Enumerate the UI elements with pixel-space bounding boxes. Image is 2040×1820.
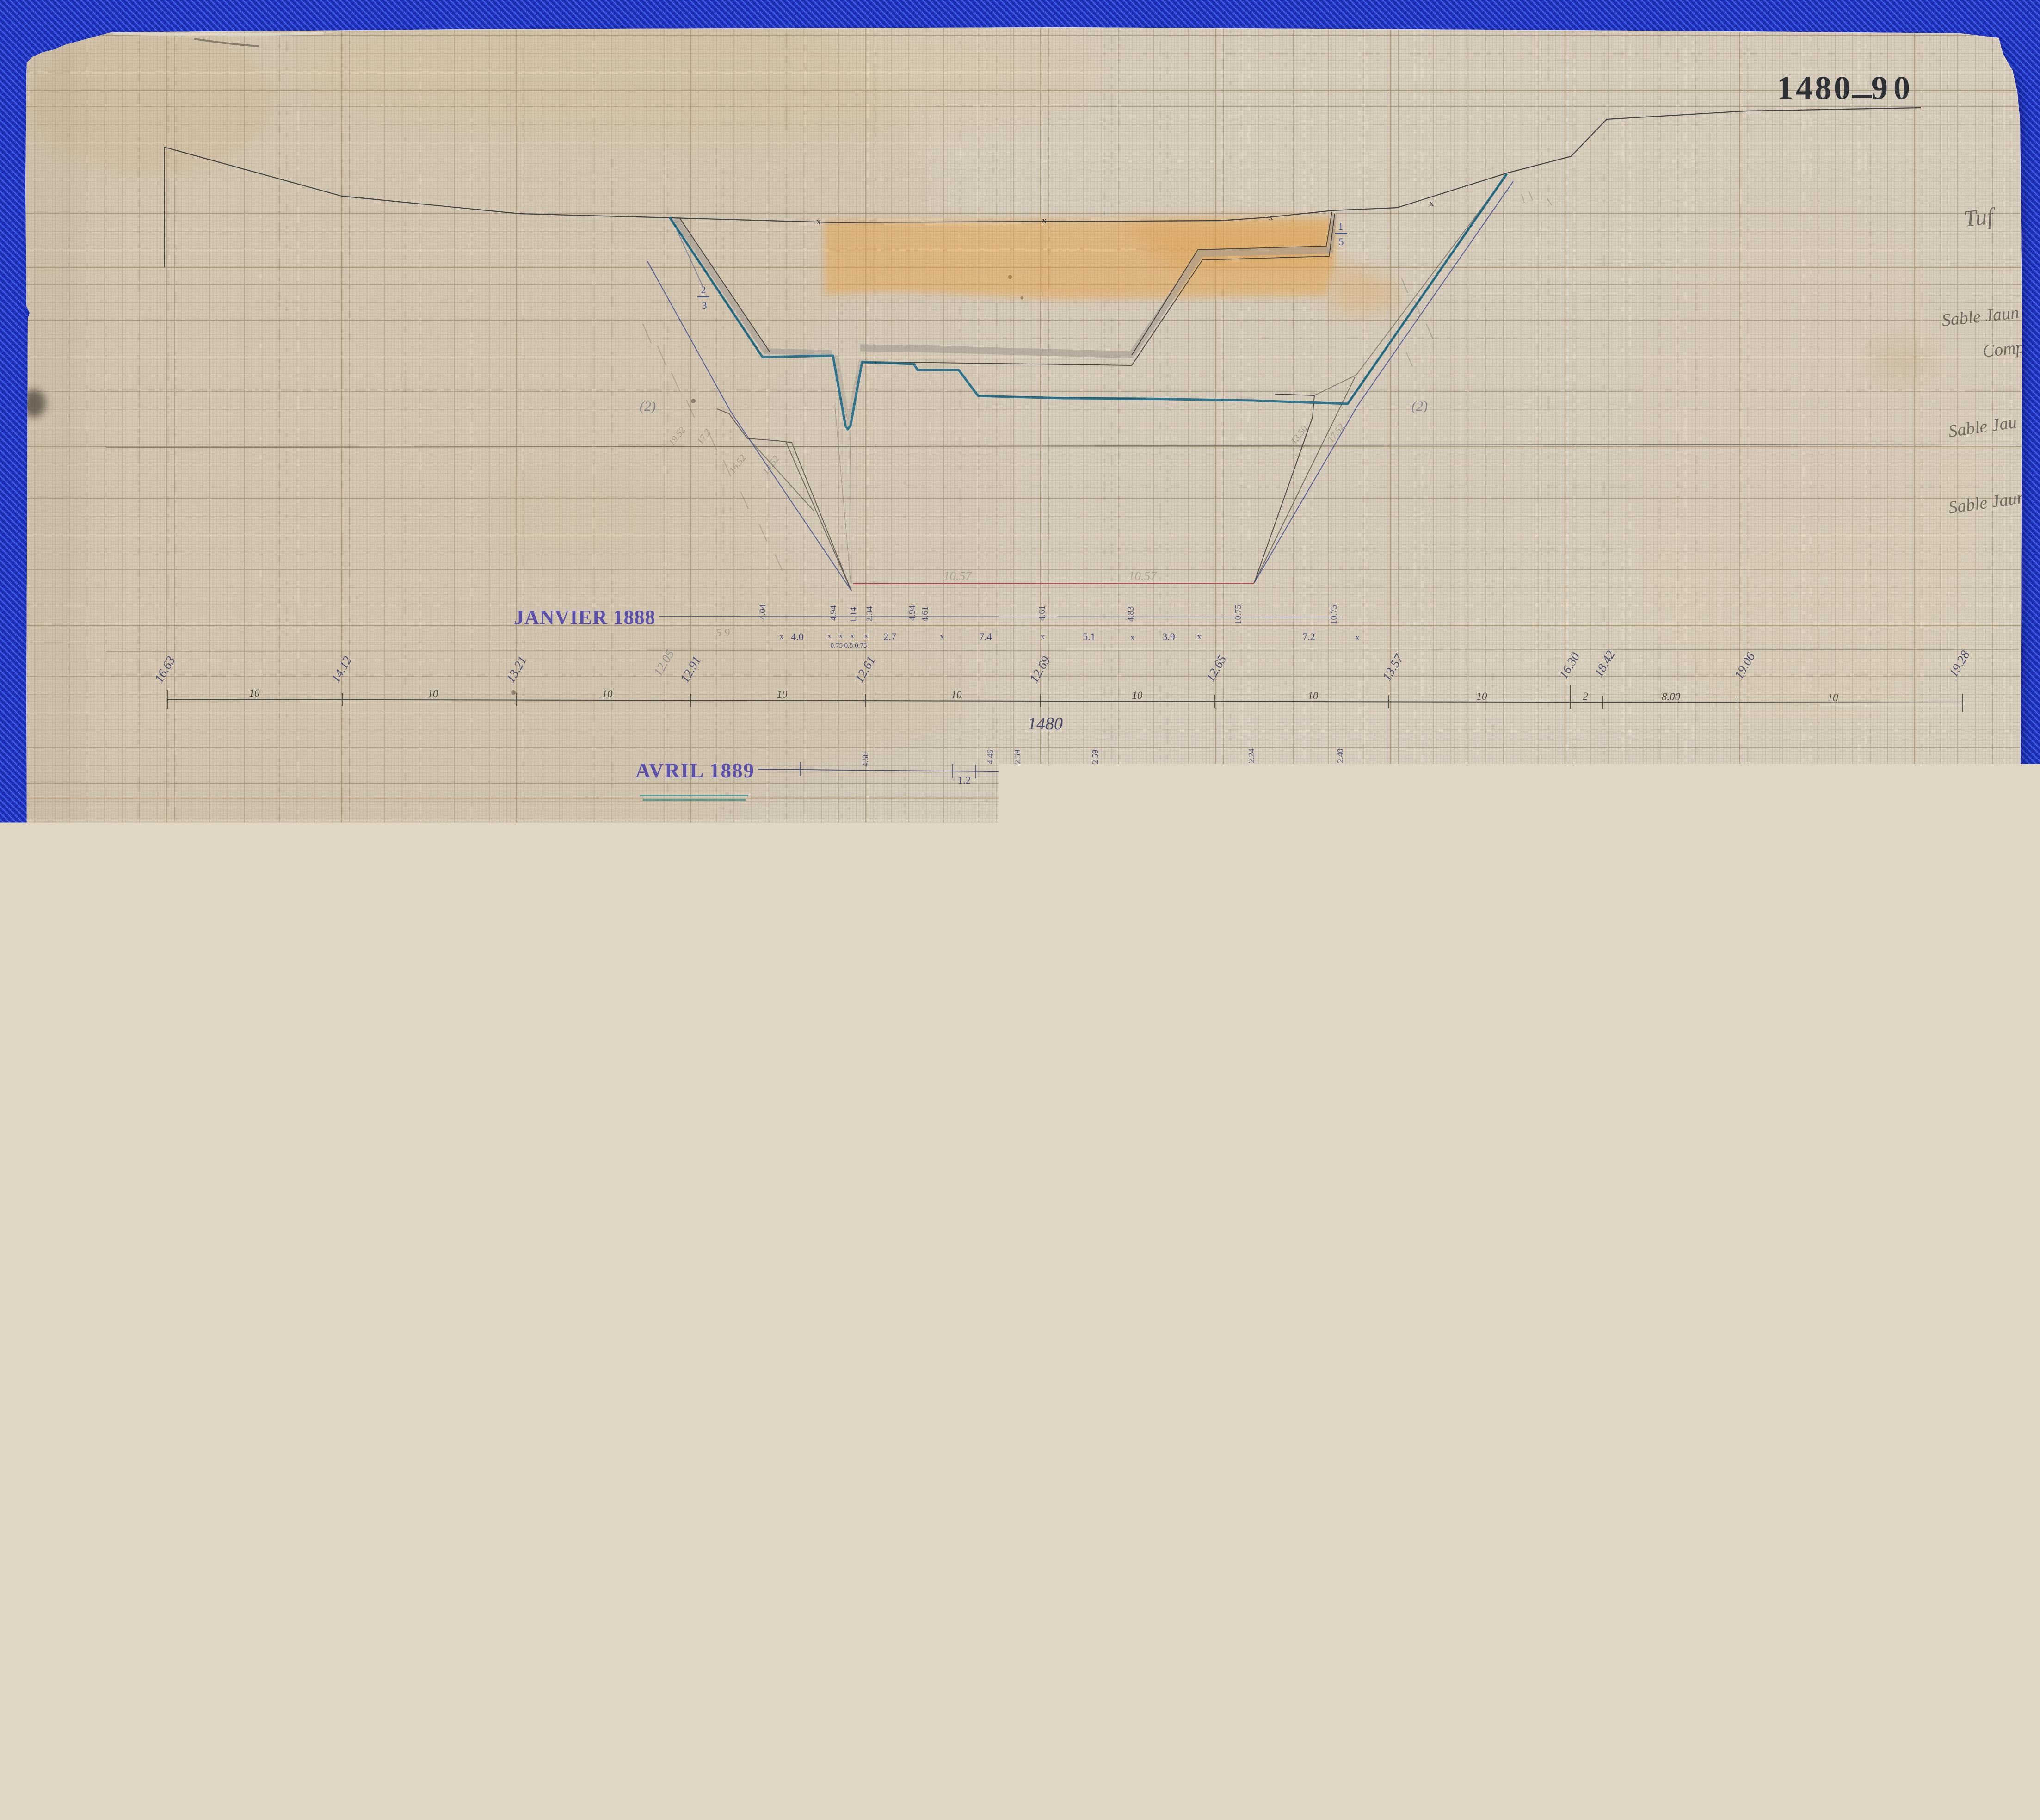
svg-text:1: 1 bbox=[1340, 1087, 1345, 1098]
svg-text:10: 10 bbox=[1828, 692, 1839, 703]
svg-text:10: 10 bbox=[1308, 690, 1319, 702]
svg-text:10: 10 bbox=[777, 689, 788, 700]
svg-text:5.1: 5.1 bbox=[1083, 631, 1096, 642]
svg-text:2.34: 2.34 bbox=[865, 606, 875, 622]
svg-text:10.75: 10.75 bbox=[1329, 605, 1339, 624]
svg-text:(2): (2) bbox=[1411, 399, 1428, 414]
svg-text:1.2: 1.2 bbox=[958, 1650, 971, 1661]
svg-text:10.75: 10.75 bbox=[1233, 605, 1243, 624]
svg-text:7.2: 7.2 bbox=[1302, 631, 1315, 642]
svg-text:1480: 1480 bbox=[1777, 69, 1853, 106]
svg-text:2.25: 2.25 bbox=[1140, 1622, 1149, 1637]
svg-text:12.00: 12.00 bbox=[1140, 773, 1163, 785]
svg-text:2: 2 bbox=[1583, 691, 1588, 702]
svg-text:x: x bbox=[1204, 1500, 1208, 1509]
svg-text:6.80: 6.80 bbox=[1277, 1496, 1295, 1507]
svg-text:9.00: 9.00 bbox=[1228, 1651, 1246, 1662]
svg-text:Tuf: Tuf bbox=[1969, 1056, 2004, 1085]
svg-text:JANVIER 1888: JANVIER 1888 bbox=[525, 1480, 667, 1503]
svg-text:x: x bbox=[1429, 198, 1434, 208]
svg-text:10.80: 10.80 bbox=[1354, 1466, 1363, 1486]
svg-text:7.4: 7.4 bbox=[979, 631, 992, 642]
svg-text:4.40: 4.40 bbox=[856, 1625, 865, 1640]
svg-text:x: x bbox=[780, 632, 784, 641]
svg-text:5: 5 bbox=[1339, 236, 1344, 247]
svg-text:(2): (2) bbox=[640, 399, 656, 414]
svg-text:10: 10 bbox=[249, 687, 260, 699]
svg-text:AVRIL 1889: AVRIL 1889 bbox=[635, 759, 755, 782]
svg-text:2.24: 2.24 bbox=[1247, 749, 1256, 764]
svg-text:10: 10 bbox=[951, 689, 962, 701]
svg-text:2: 2 bbox=[1581, 1561, 1586, 1573]
svg-text:5 9: 5 9 bbox=[716, 627, 730, 639]
svg-text:0.75 0.5 0.75: 0.75 0.5 0.75 bbox=[831, 642, 867, 649]
svg-text:AVRIL 1889: AVRIL 1889 bbox=[642, 1631, 761, 1654]
svg-text:1.2: 1.2 bbox=[958, 774, 971, 786]
svg-text:4.67: 4.67 bbox=[825, 1466, 835, 1481]
svg-text:10: 10 bbox=[776, 1562, 787, 1574]
svg-text:10.57: 10.57 bbox=[943, 569, 972, 583]
svg-text:6.00: 6.00 bbox=[1097, 1651, 1116, 1662]
svg-text:1.07: 1.07 bbox=[844, 1468, 854, 1483]
svg-text:4.98: 4.98 bbox=[1367, 1614, 1376, 1629]
svg-text:1: 1 bbox=[1338, 221, 1344, 232]
svg-text:2.51: 2.51 bbox=[1035, 1624, 1045, 1639]
svg-text:x: x bbox=[864, 631, 869, 640]
svg-text:x: x bbox=[1041, 1500, 1045, 1509]
svg-text:4.61: 4.61 bbox=[920, 606, 930, 622]
svg-text:x: x bbox=[1042, 216, 1047, 226]
svg-text:1480: 1480 bbox=[1028, 714, 1063, 734]
svg-text:1.14: 1.14 bbox=[849, 607, 858, 623]
svg-text:4.67: 4.67 bbox=[763, 1467, 773, 1482]
svg-text:0.75 0.5 0.75: 0.75 0.5 0.75 bbox=[841, 1510, 878, 1517]
svg-text:3.9: 3.9 bbox=[1162, 631, 1175, 642]
svg-text:2.40: 2.40 bbox=[1336, 749, 1345, 764]
svg-text:10: 10 bbox=[1309, 1563, 1320, 1575]
svg-text:4.0: 4.0 bbox=[791, 631, 804, 642]
svg-text:3: 3 bbox=[702, 300, 707, 311]
svg-text:3.80: 3.80 bbox=[1049, 775, 1067, 787]
svg-text:x: x bbox=[851, 631, 855, 640]
svg-text:5: 5 bbox=[1341, 1102, 1346, 1114]
svg-text:4.83: 4.83 bbox=[1126, 606, 1136, 622]
svg-text:10: 10 bbox=[602, 688, 613, 700]
svg-text:x: x bbox=[828, 1501, 832, 1510]
svg-text:2.7: 2.7 bbox=[883, 631, 896, 642]
svg-text:4.71: 4.71 bbox=[1036, 1466, 1046, 1481]
svg-text:2.95: 2.95 bbox=[1180, 1496, 1198, 1507]
svg-text:10.20: 10.20 bbox=[953, 1497, 976, 1508]
svg-text:90: 90 bbox=[1871, 69, 1916, 106]
svg-text:6.45: 6.45 bbox=[1098, 1497, 1116, 1508]
svg-text:x: x bbox=[940, 632, 944, 641]
svg-text:10: 10 bbox=[1477, 691, 1488, 702]
svg-text:10: 10 bbox=[1132, 690, 1143, 701]
svg-text:4.47: 4.47 bbox=[949, 1624, 959, 1639]
svg-text:Tuf: Tuf bbox=[1962, 203, 1997, 232]
svg-text:10: 10 bbox=[1131, 1563, 1142, 1575]
svg-text:x: x bbox=[839, 1501, 843, 1510]
svg-text:x: x bbox=[1152, 1500, 1156, 1509]
svg-text:4.94: 4.94 bbox=[907, 605, 917, 621]
svg-text:2: 2 bbox=[708, 1155, 713, 1167]
svg-text:10.80: 10.80 bbox=[1200, 1466, 1210, 1486]
svg-text:8.: 8. bbox=[1664, 1561, 1672, 1572]
svg-text:10: 10 bbox=[1849, 1561, 1860, 1573]
svg-text:8.00: 8.00 bbox=[1662, 691, 1681, 703]
svg-text:x: x bbox=[827, 631, 832, 640]
svg-text:10: 10 bbox=[428, 688, 439, 699]
svg-text:x: x bbox=[849, 1501, 853, 1510]
svg-text:x: x bbox=[839, 631, 843, 640]
svg-text:x: x bbox=[1356, 633, 1360, 642]
svg-text:10.57: 10.57 bbox=[1128, 569, 1157, 583]
svg-text:4.46: 4.46 bbox=[986, 750, 995, 765]
svg-text:x: x bbox=[1041, 632, 1045, 641]
svg-text:4.67: 4.67 bbox=[860, 1466, 870, 1481]
svg-text:x: x bbox=[1131, 633, 1135, 642]
svg-text:2.18: 2.18 bbox=[1331, 1621, 1340, 1636]
svg-text:2.31: 2.31 bbox=[970, 1624, 979, 1639]
svg-text:4.04: 4.04 bbox=[758, 604, 768, 620]
svg-text:3: 3 bbox=[709, 1171, 714, 1183]
svg-text:2.59: 2.59 bbox=[1013, 750, 1022, 765]
svg-text:10: 10 bbox=[430, 1562, 441, 1573]
svg-text:2: 2 bbox=[701, 284, 706, 296]
svg-text:4.56: 4.56 bbox=[861, 753, 870, 767]
svg-text:x: x bbox=[1356, 1500, 1360, 1509]
svg-text:10: 10 bbox=[1476, 1561, 1487, 1573]
svg-text:4.94: 4.94 bbox=[829, 605, 838, 621]
svg-text:x: x bbox=[816, 217, 821, 227]
svg-text:2.59: 2.59 bbox=[1091, 750, 1100, 765]
svg-text:10: 10 bbox=[950, 1563, 961, 1574]
svg-text:10: 10 bbox=[605, 1562, 616, 1574]
svg-text:10: 10 bbox=[254, 1561, 265, 1573]
svg-text:x: x bbox=[862, 1501, 866, 1510]
svg-text:3.80: 3.80 bbox=[1001, 1651, 1019, 1662]
svg-text:x: x bbox=[1197, 632, 1202, 641]
svg-text:5.10: 5.10 bbox=[1295, 775, 1313, 787]
svg-text:1490: 1490 bbox=[1025, 1581, 1060, 1601]
svg-text:JANVIER 1888: JANVIER 1888 bbox=[514, 606, 656, 629]
svg-text:x: x bbox=[1269, 212, 1273, 222]
svg-text:4.61: 4.61 bbox=[1037, 605, 1047, 621]
svg-text:x: x bbox=[767, 1499, 771, 1508]
svg-text:4.85: 4.85 bbox=[1146, 1465, 1156, 1480]
svg-text:3.45: 3.45 bbox=[798, 1497, 816, 1508]
